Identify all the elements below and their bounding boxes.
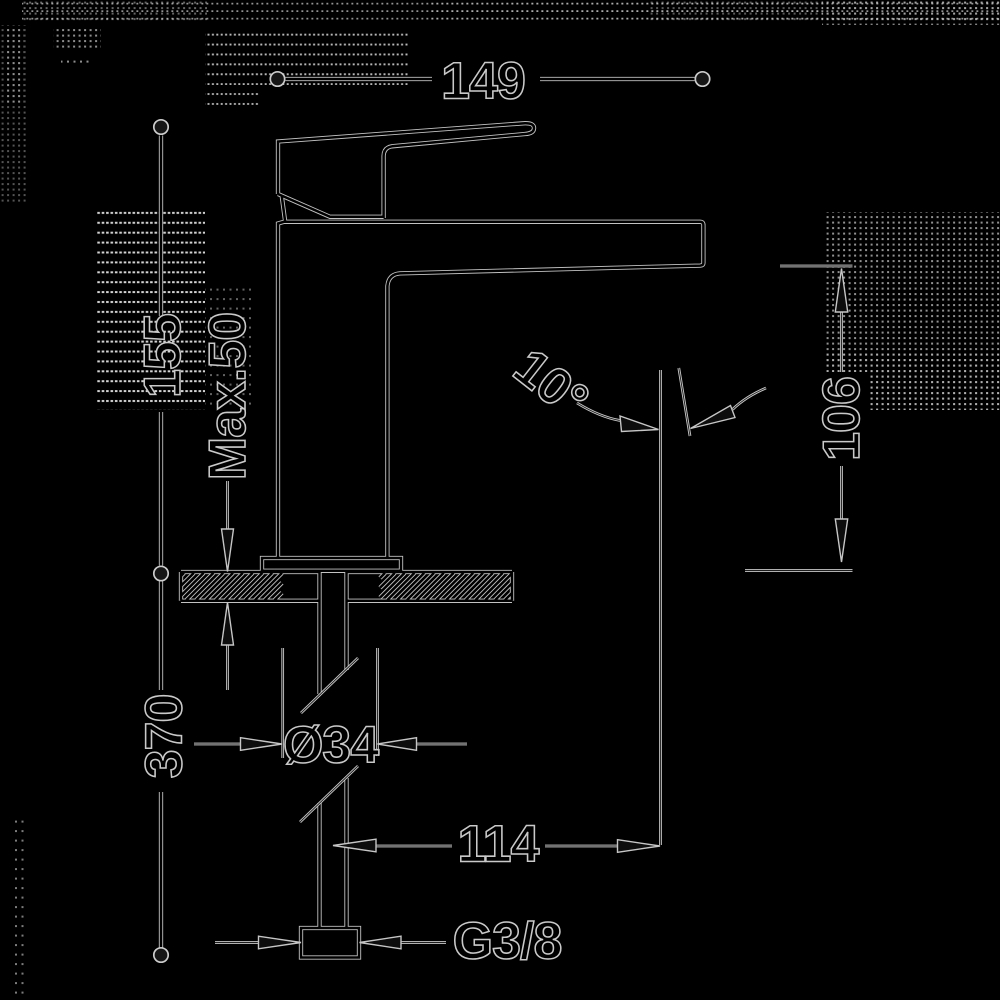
svg-text:370: 370 <box>135 695 193 779</box>
svg-text:Max.50: Max.50 <box>199 313 257 480</box>
svg-text:114: 114 <box>458 816 540 874</box>
svg-text:Ø34: Ø34 <box>283 717 379 775</box>
svg-text:149: 149 <box>441 53 525 111</box>
svg-text:G3/8: G3/8 <box>453 913 562 971</box>
svg-text:106: 106 <box>813 377 871 461</box>
svg-text:155: 155 <box>134 314 192 398</box>
